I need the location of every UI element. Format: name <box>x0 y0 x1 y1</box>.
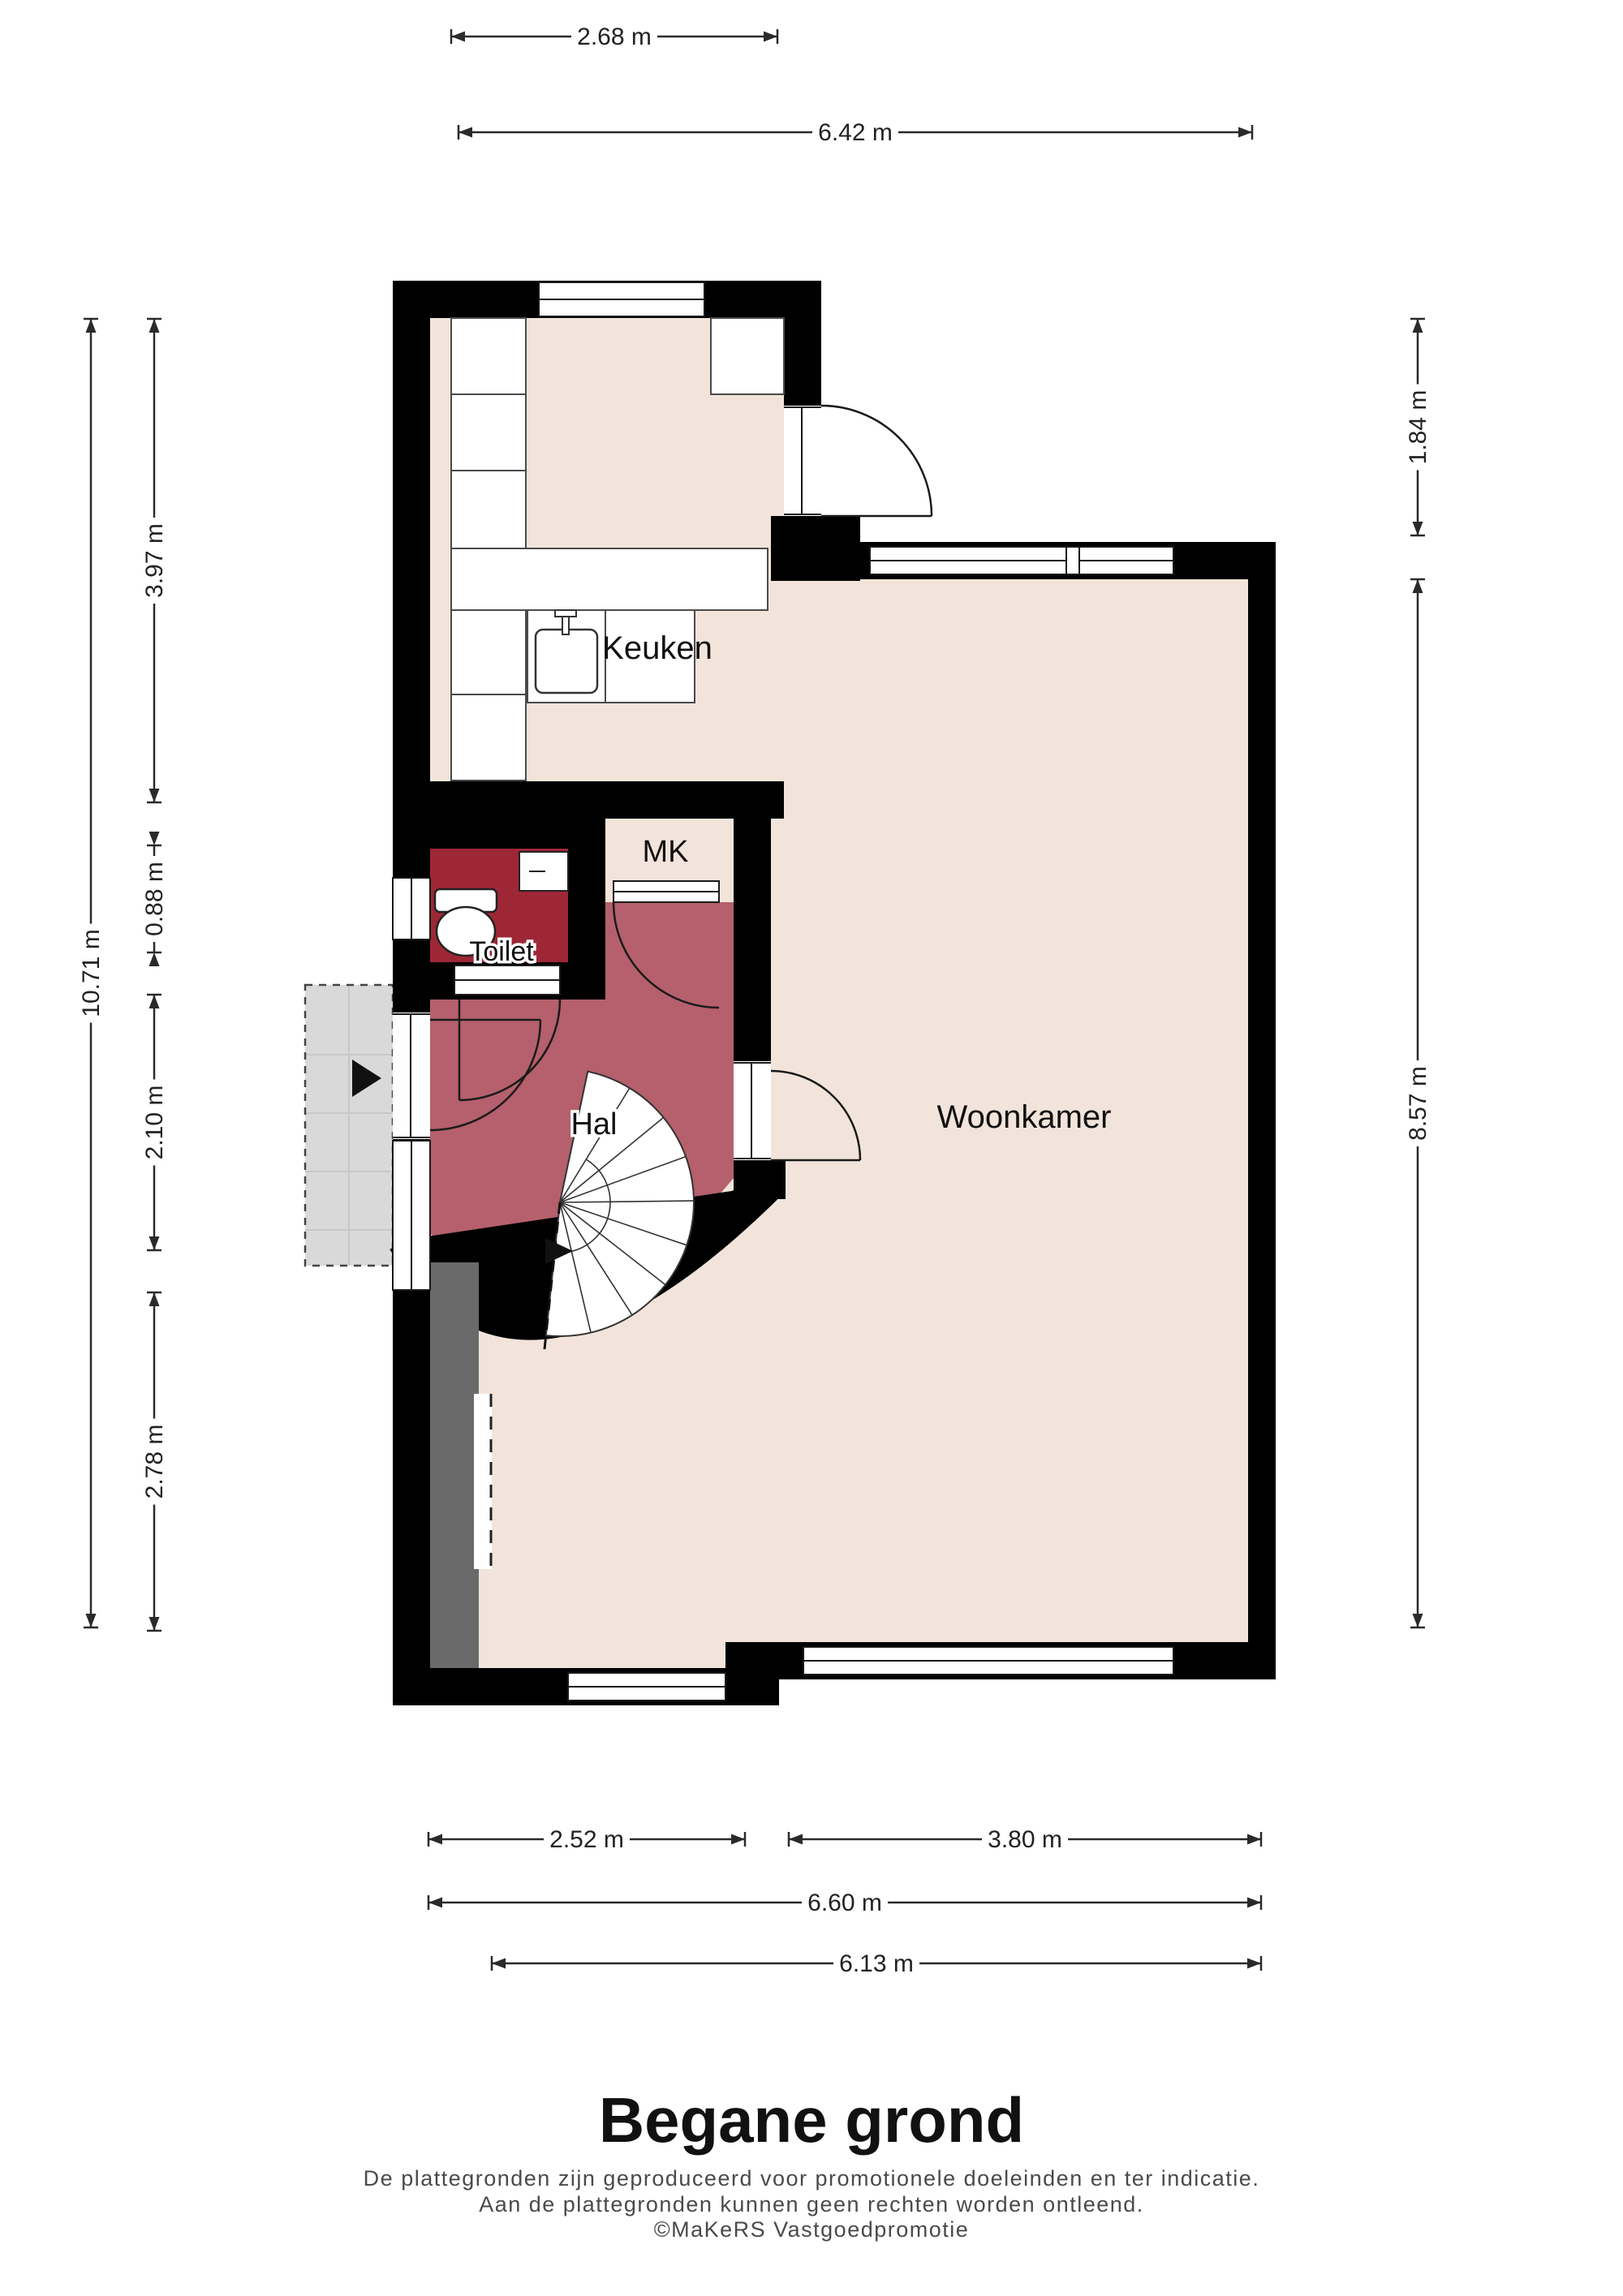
dim-2-78-m: 2.78 m <box>140 1292 169 1631</box>
window-livingroom-top <box>870 547 1173 574</box>
dim-label: 10.71 m <box>78 929 105 1017</box>
dim-label: 6.60 m <box>807 1890 882 1916</box>
dim-3-80-m: 3.80 m <box>789 1825 1261 1854</box>
dim-label: 2.10 m <box>141 1086 168 1160</box>
copyright-line: ©MaKeRS Vastgoedpromotie <box>654 2217 970 2242</box>
dim-6-13-m: 6.13 m <box>492 1949 1261 1978</box>
dim-label: 1.84 m <box>1405 390 1431 465</box>
entrance-porch <box>305 985 393 1266</box>
kitchen-island-bar <box>451 548 768 610</box>
window-bottom-left <box>568 1673 725 1701</box>
dim-label: 2.68 m <box>577 24 652 50</box>
dashed-opening-strip <box>474 1394 492 1569</box>
room-label-toilet: Toilet <box>469 936 534 967</box>
wall-toilet-right <box>568 849 605 962</box>
disclaimer-line-1: De plattegronden zijn geproduceerd voor … <box>364 2166 1260 2191</box>
counter-unit <box>451 394 526 471</box>
dim-0-88-m: 0.88 m <box>140 832 169 966</box>
dim-label: 6.42 m <box>818 119 893 146</box>
counter-unit <box>451 610 526 694</box>
threshold-toilet-door <box>454 965 560 995</box>
wall-lower-left-dark <box>430 1262 479 1668</box>
counter-appliance-topright <box>711 318 784 394</box>
dim-8-57-m: 8.57 m <box>1403 579 1432 1627</box>
dim-label: 6.13 m <box>839 1950 914 1977</box>
wall-kitchen-right <box>784 318 821 406</box>
dim-1-84-m: 1.84 m <box>1403 319 1432 535</box>
dim-3-97-m: 3.97 m <box>140 319 169 802</box>
wall-left <box>393 281 430 1705</box>
dim-label: 2.78 m <box>141 1425 168 1499</box>
window-toilet-left <box>393 878 430 939</box>
counter-unit <box>451 471 526 548</box>
wall-right <box>1248 542 1276 1679</box>
floorplan-page: Keuken Woonkamer Hal Toilet MK 2.68 m6.4… <box>0 0 1623 2296</box>
dim-2-10-m: 2.10 m <box>140 995 169 1250</box>
dim-label: 3.80 m <box>988 1826 1062 1853</box>
window-kitchen-top <box>539 282 704 316</box>
dim-label: 0.88 m <box>141 862 168 936</box>
room-label-keuken: Keuken <box>602 630 712 666</box>
kitchen-side-door <box>784 406 932 516</box>
dim-label: 2.52 m <box>549 1826 624 1853</box>
dim-6-60-m: 6.60 m <box>428 1888 1261 1917</box>
counter-unit <box>451 694 526 780</box>
dim-label: 8.57 m <box>1405 1066 1431 1141</box>
page-title: Begane grond <box>599 2084 1024 2156</box>
dim-10-71-m: 10.71 m <box>76 319 105 1627</box>
wall-kitchen-bottom <box>430 781 784 819</box>
threshold-mk-door <box>613 881 719 902</box>
counter-unit <box>451 318 526 394</box>
sink-basin <box>536 630 597 693</box>
dim-2-68-m: 2.68 m <box>451 22 777 51</box>
room-label-hal: Hal <box>570 1107 617 1142</box>
room-label-woonkamer: Woonkamer <box>937 1099 1112 1135</box>
dim-2-52-m: 2.52 m <box>428 1825 745 1854</box>
wall-toilet-top <box>430 819 605 849</box>
dim-6-42-m: 6.42 m <box>458 118 1252 147</box>
window-bottom-right <box>803 1647 1173 1675</box>
dim-label: 3.97 m <box>141 523 168 598</box>
room-label-mk: MK <box>643 835 689 869</box>
floorplan-drawing: Keuken Woonkamer Hal Toilet MK 2.68 m6.4… <box>0 0 1623 2296</box>
disclaimer-line-2: Aan de plattegronden kunnen geen rechten… <box>479 2192 1144 2216</box>
wall-mk-right <box>734 819 771 1061</box>
window-hall-left <box>393 1141 430 1290</box>
